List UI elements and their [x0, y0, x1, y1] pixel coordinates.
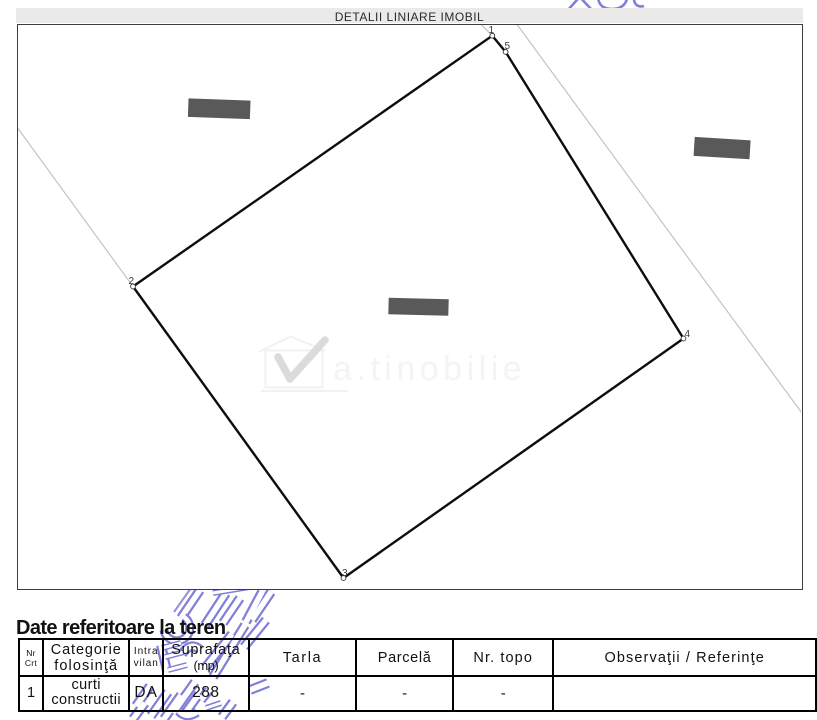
svg-text:1: 1 — [489, 25, 495, 36]
svg-text:3: 3 — [342, 568, 348, 579]
svg-text:5: 5 — [505, 41, 511, 52]
svg-text:a.tinobilie: a.tinobilie — [333, 350, 526, 388]
svg-text:4: 4 — [685, 329, 691, 340]
svg-text:2: 2 — [129, 276, 135, 287]
